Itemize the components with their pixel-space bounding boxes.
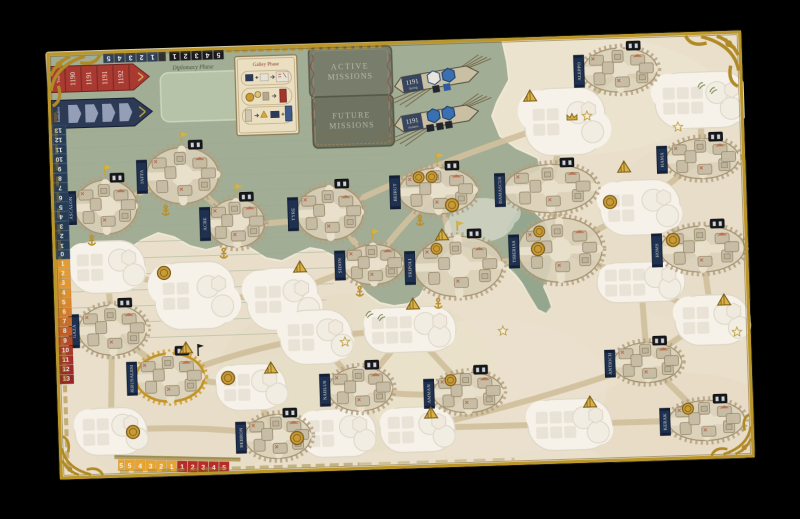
svg-text:1190: 1190	[69, 71, 77, 85]
svg-text:4: 4	[138, 463, 142, 470]
svg-text:NABLUS: NABLUS	[322, 380, 328, 400]
svg-text:4: 4	[117, 54, 121, 61]
svg-text:HEBRON: HEBRON	[238, 427, 244, 448]
svg-text:FUTURE: FUTURE	[332, 110, 371, 120]
svg-text:TYRE: TYRE	[290, 208, 295, 221]
svg-text:ACRE: ACRE	[202, 217, 207, 230]
svg-text:SIDON: SIDON	[337, 257, 342, 273]
svg-text:5: 5	[216, 51, 220, 58]
svg-text:1191: 1191	[101, 70, 109, 84]
svg-text:BEIRUT: BEIRUT	[392, 183, 398, 201]
svg-text:ANTIOCH: ANTIOCH	[607, 352, 613, 375]
svg-text:JAFFA: JAFFA	[139, 169, 144, 184]
svg-text:AMMAN: AMMAN	[426, 384, 432, 404]
svg-text:MISSIONS: MISSIONS	[329, 120, 375, 130]
svg-text:TIBERIAS: TIBERIAS	[511, 240, 517, 263]
svg-text:5: 5	[106, 54, 110, 61]
svg-text:ASCALON: ASCALON	[68, 196, 74, 220]
svg-text:TRIPOLI: TRIPOLI	[407, 258, 413, 277]
svg-text:ACTIVE: ACTIVE	[331, 61, 370, 71]
svg-text:1: 1	[172, 52, 176, 59]
svg-text:ALEPPO: ALEPPO	[576, 61, 582, 80]
svg-text:KERAK: KERAK	[662, 413, 668, 430]
svg-text:2: 2	[183, 52, 187, 59]
svg-text:1192: 1192	[117, 70, 125, 84]
svg-text:JERUSALEM: JERUSALEM	[129, 364, 135, 393]
svg-text:HOMS: HOMS	[654, 243, 659, 257]
svg-text:3: 3	[128, 53, 132, 60]
svg-text:4: 4	[205, 51, 209, 58]
svg-text:2: 2	[139, 53, 143, 60]
svg-text:5: 5	[128, 463, 132, 470]
svg-text:MISSIONS: MISSIONS	[327, 71, 373, 81]
svg-text:Galley Phase: Galley Phase	[253, 62, 280, 68]
svg-text:1191: 1191	[85, 71, 93, 85]
svg-text:HAMA: HAMA	[659, 152, 664, 167]
svg-text:3: 3	[194, 51, 198, 58]
svg-text:DAMASCUS: DAMASCUS	[497, 176, 503, 204]
svg-text:1: 1	[150, 53, 154, 60]
svg-text:5: 5	[119, 463, 123, 470]
